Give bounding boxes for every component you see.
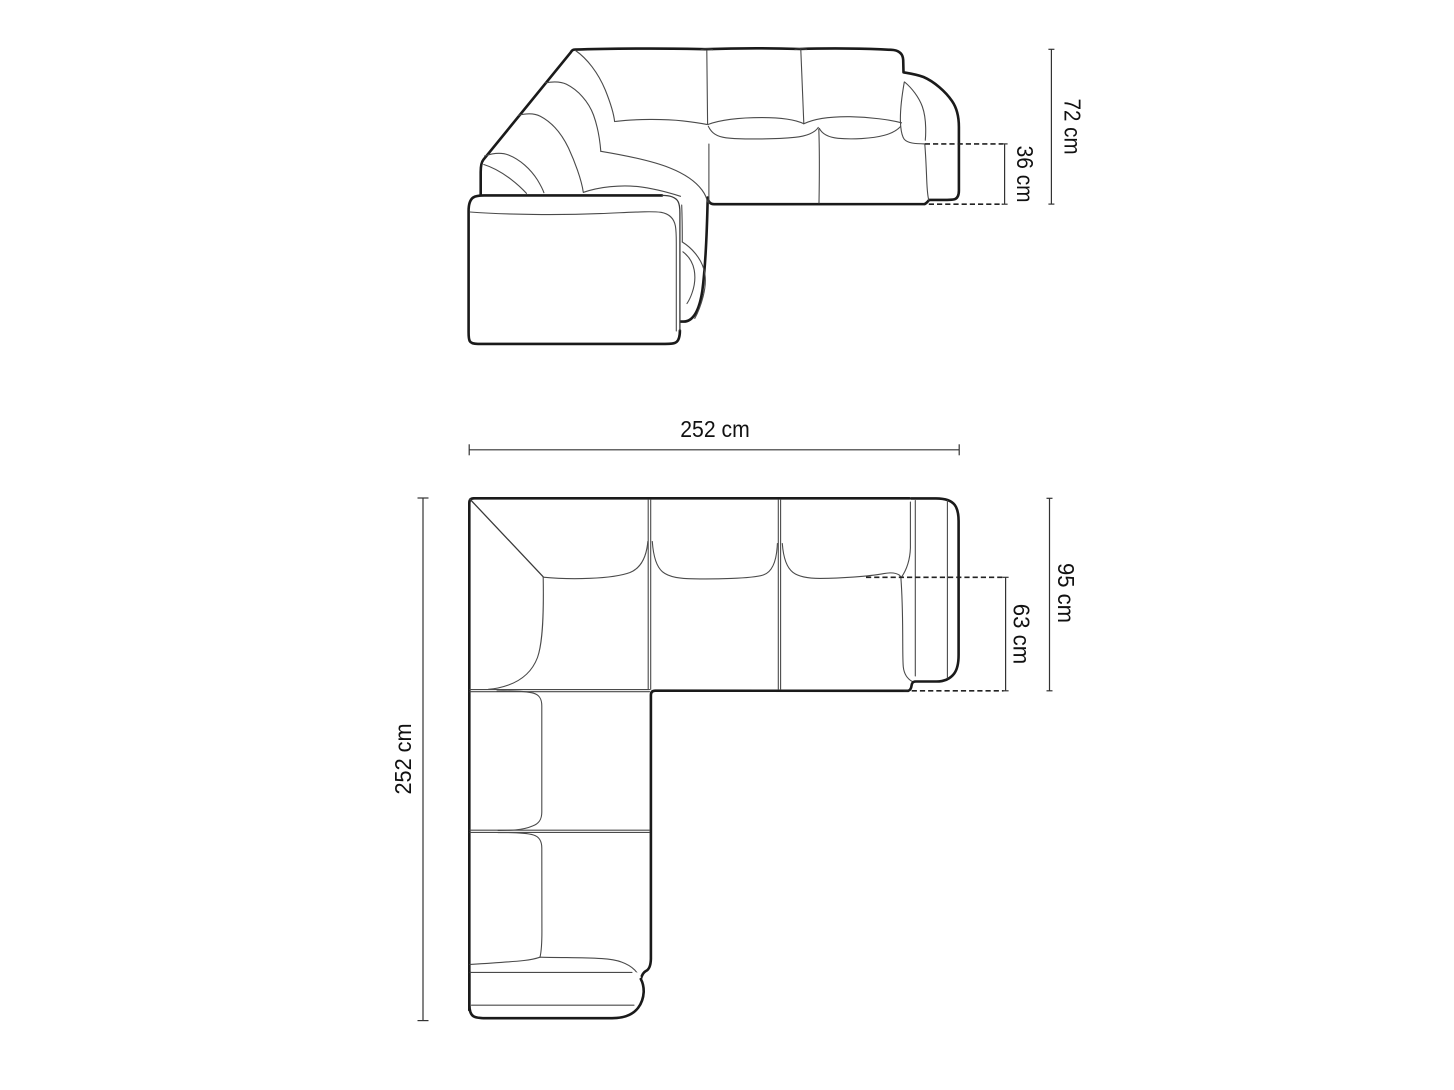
svg-text:63 cm: 63 cm [1009, 604, 1035, 665]
svg-text:252 cm: 252 cm [390, 724, 416, 795]
svg-text:36 cm: 36 cm [1012, 146, 1038, 203]
svg-text:95 cm: 95 cm [1053, 563, 1079, 623]
svg-text:72 cm: 72 cm [1060, 99, 1086, 155]
svg-text:252 cm: 252 cm [680, 416, 750, 442]
